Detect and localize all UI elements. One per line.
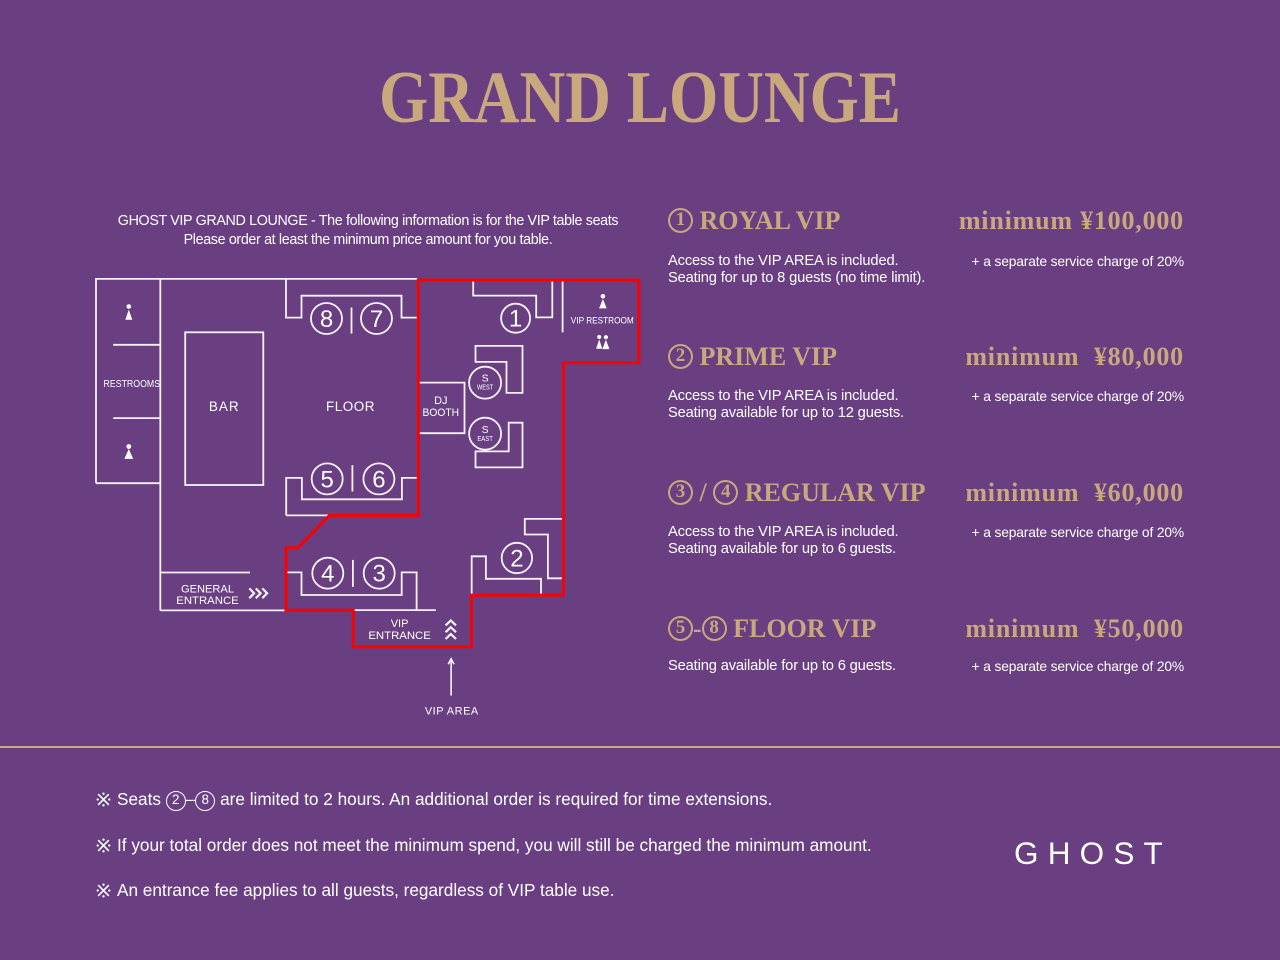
svg-text:FLOOR: FLOOR <box>326 399 375 414</box>
svg-text:8: 8 <box>320 306 333 333</box>
svg-text:2: 2 <box>510 546 523 573</box>
svg-text:7: 7 <box>370 306 383 333</box>
svg-text:VIP AREA: VIP AREA <box>425 705 479 717</box>
svg-text:BOOTH: BOOTH <box>423 407 460 419</box>
svg-text:GENERAL: GENERAL <box>181 584 234 596</box>
svg-text:DJ: DJ <box>434 395 447 407</box>
svg-text:6: 6 <box>372 466 385 493</box>
svg-text:5: 5 <box>321 466 334 493</box>
svg-text:VIP RESTROOM: VIP RESTROOM <box>571 316 634 326</box>
svg-text:4: 4 <box>321 561 334 588</box>
svg-text:3: 3 <box>373 561 386 588</box>
svg-text:WEST: WEST <box>477 382 494 391</box>
svg-text:BAR: BAR <box>209 399 240 414</box>
svg-text:ENTRANCE: ENTRANCE <box>368 630 431 642</box>
svg-text:RESTROOMS: RESTROOMS <box>104 378 161 390</box>
svg-text:1: 1 <box>509 306 522 333</box>
svg-text:VIP: VIP <box>391 618 409 630</box>
svg-text:EAST: EAST <box>477 434 493 443</box>
svg-text:ENTRANCE: ENTRANCE <box>176 595 239 607</box>
